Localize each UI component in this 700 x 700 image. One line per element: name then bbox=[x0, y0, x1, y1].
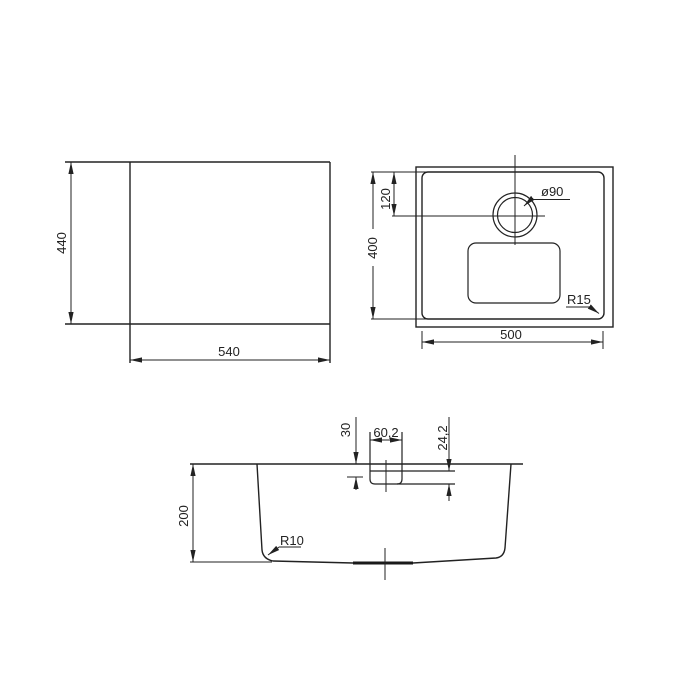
dim-overall-height: 440 bbox=[54, 162, 71, 324]
dim-drain-offset: 120 bbox=[378, 172, 394, 216]
bowl-top-view: 120 400 500 ø90 R15 bbox=[365, 155, 613, 349]
overall-width-label: 540 bbox=[218, 344, 240, 359]
drain-diameter-label: ø90 bbox=[541, 184, 563, 199]
dim-recess-offset: 30 bbox=[338, 417, 356, 490]
technical-drawing: 440 540 120 400 bbox=[0, 0, 700, 700]
corner-radius-callout: R15 bbox=[566, 292, 599, 314]
bottom-radius-label: R10 bbox=[280, 533, 304, 548]
recess-width-label: 60,2 bbox=[373, 425, 398, 440]
overall-top-view: 440 540 bbox=[54, 162, 330, 363]
bowl-width-label: 500 bbox=[500, 327, 522, 342]
recess-offset-label: 30 bbox=[338, 423, 353, 437]
dim-bowl-width: 500 bbox=[422, 327, 603, 342]
overall-outline bbox=[65, 162, 330, 363]
dim-recess-depth: 24,2 bbox=[435, 417, 450, 501]
corner-radius-label: R15 bbox=[567, 292, 591, 307]
bowl-depth-label: 400 bbox=[365, 237, 380, 259]
overall-height-label: 440 bbox=[54, 232, 69, 254]
drain-offset-label: 120 bbox=[378, 188, 393, 210]
leader-line bbox=[590, 307, 599, 314]
bowl-profile bbox=[257, 464, 511, 563]
drain-diameter-callout: ø90 bbox=[524, 184, 570, 206]
dim-overall-width: 540 bbox=[130, 344, 330, 360]
bottom-radius-callout: R10 bbox=[268, 533, 304, 555]
dim-recess-width: 60,2 bbox=[370, 425, 402, 440]
section-view: 200 R10 30 60,2 24,2 bbox=[176, 417, 523, 580]
leader-line bbox=[268, 547, 279, 555]
recess-depth-label: 24,2 bbox=[435, 425, 450, 450]
bowl-base-rect bbox=[468, 243, 560, 303]
drain-hole bbox=[392, 155, 545, 245]
drawing-canvas: 440 540 120 400 bbox=[0, 0, 700, 700]
dim-section-depth: 200 bbox=[176, 464, 193, 562]
section-depth-label: 200 bbox=[176, 505, 191, 527]
